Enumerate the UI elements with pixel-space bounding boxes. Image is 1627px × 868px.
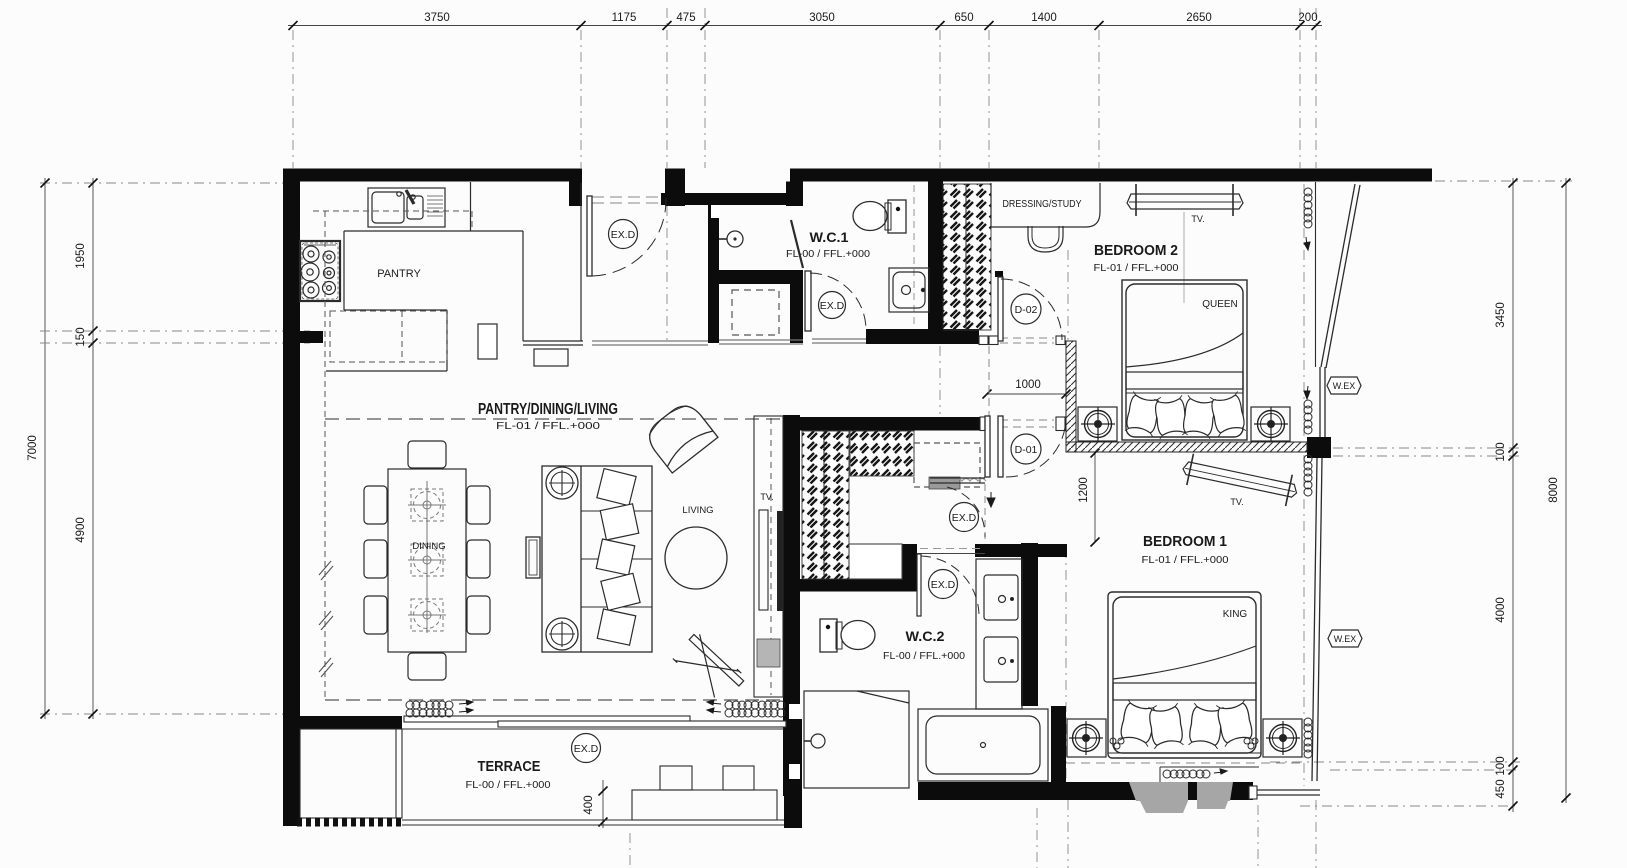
svg-text:LIVING: LIVING — [682, 505, 713, 516]
svg-text:PANTRY/DINING/LIVING: PANTRY/DINING/LIVING — [478, 401, 618, 418]
svg-text:475: 475 — [676, 12, 695, 24]
svg-text:3450: 3450 — [1495, 302, 1507, 328]
svg-text:BEDROOM 1: BEDROOM 1 — [1143, 534, 1227, 550]
svg-text:4900: 4900 — [75, 517, 87, 543]
svg-text:FL-01 / FFL.+000: FL-01 / FFL.+000 — [1094, 262, 1179, 274]
svg-text:400: 400 — [583, 795, 595, 814]
svg-text:150: 150 — [75, 327, 87, 346]
svg-text:DINING: DINING — [412, 541, 445, 552]
svg-text:FL-00 / FFL.+000: FL-00 / FFL.+000 — [883, 651, 965, 662]
svg-text:FL-01 / FFL.+000: FL-01 / FFL.+000 — [1142, 554, 1229, 566]
svg-text:EX.D: EX.D — [611, 229, 636, 241]
svg-text:FL-01 / FFL.+000: FL-01 / FFL.+000 — [496, 420, 600, 432]
svg-text:EX.D: EX.D — [952, 512, 977, 524]
svg-text:200: 200 — [1298, 12, 1317, 24]
svg-text:TERRACE: TERRACE — [478, 759, 541, 775]
svg-text:1400: 1400 — [1031, 12, 1057, 24]
svg-text:FL-00 / FFL.+000: FL-00 / FFL.+000 — [466, 779, 551, 791]
svg-text:4000: 4000 — [1495, 597, 1507, 623]
svg-text:W.EX: W.EX — [1333, 381, 1356, 391]
svg-text:3750: 3750 — [424, 12, 450, 24]
svg-text:BEDROOM 2: BEDROOM 2 — [1094, 243, 1178, 259]
svg-text:EX.D: EX.D — [931, 579, 956, 591]
svg-text:TV.: TV. — [760, 492, 773, 502]
svg-text:1950: 1950 — [75, 243, 87, 269]
svg-text:QUEEN: QUEEN — [1202, 299, 1238, 310]
svg-text:100: 100 — [1495, 756, 1507, 775]
svg-text:450: 450 — [1495, 779, 1507, 798]
svg-text:EX.D: EX.D — [820, 300, 845, 312]
svg-text:650: 650 — [954, 12, 973, 24]
svg-text:1000: 1000 — [1015, 379, 1041, 391]
svg-text:8000: 8000 — [1548, 477, 1560, 503]
svg-text:1175: 1175 — [612, 12, 637, 24]
svg-text:W.C.2: W.C.2 — [906, 629, 945, 644]
svg-text:KING: KING — [1223, 609, 1248, 620]
svg-text:2650: 2650 — [1186, 12, 1212, 24]
svg-text:TV.: TV. — [1230, 497, 1243, 507]
svg-text:W.EX: W.EX — [1334, 634, 1357, 644]
svg-text:TV.: TV. — [1191, 214, 1204, 224]
svg-text:EX.D: EX.D — [574, 743, 599, 755]
svg-text:D-02: D-02 — [1015, 304, 1038, 316]
svg-text:3050: 3050 — [809, 12, 835, 24]
svg-text:1200: 1200 — [1078, 477, 1090, 503]
svg-text:FL-00 / FFL.+000: FL-00 / FFL.+000 — [786, 249, 870, 260]
svg-text:PANTRY: PANTRY — [377, 268, 421, 280]
svg-text:7000: 7000 — [27, 435, 39, 461]
svg-text:100: 100 — [1495, 442, 1507, 461]
svg-text:D-01: D-01 — [1015, 444, 1038, 456]
svg-text:W.C.1: W.C.1 — [810, 230, 850, 245]
svg-text:DRESSING/STUDY: DRESSING/STUDY — [1003, 199, 1082, 210]
